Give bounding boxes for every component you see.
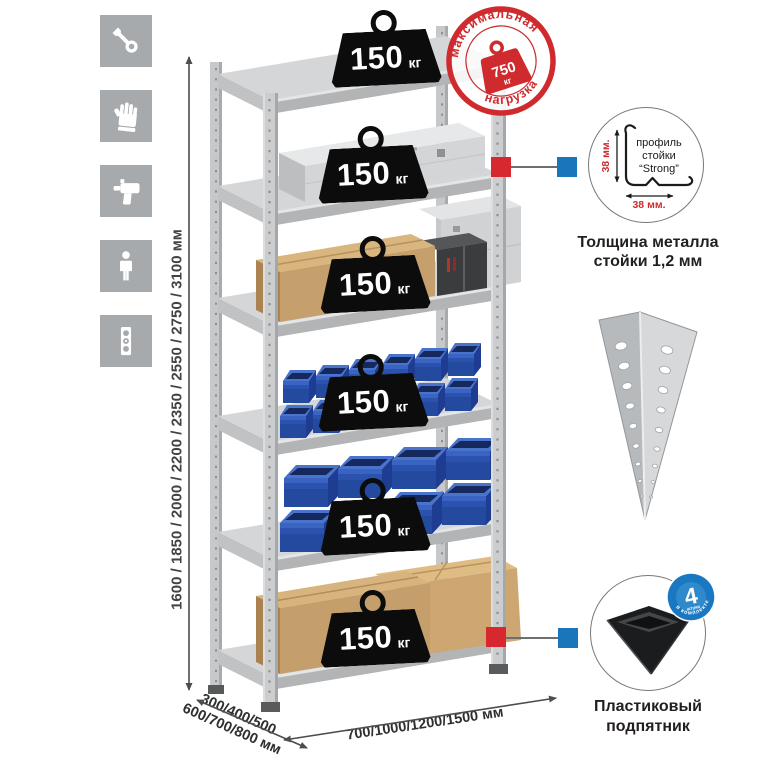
weight-body: 150 кг [317,254,432,314]
angle-post-graphic [593,306,703,526]
profile-caption: Толщина металла стойки 1,2 мм [563,233,733,271]
foot-caption: Пластиковый подпятник [573,697,723,737]
load-unit: кг [397,634,411,651]
weight-badge-shelf2: 150 кг [314,123,430,204]
callout-marker-blue-top [557,157,577,177]
callout-marker-blue-bottom [558,628,578,648]
weight-badge-shelf6: 150 кг [316,587,432,668]
load-value: 150 [336,383,391,422]
person-icon [100,240,152,292]
weight-body: 150 кг [315,372,430,432]
profile-label-line1: профиль [636,137,682,149]
product-infographic: 1600 / 1850 / 2000 / 2200 / 2350 / 2550 … [0,0,765,765]
load-unit: кг [395,398,409,415]
profile-label-line3: “Strong” [639,163,679,175]
foot-caption-line2: подпятник [573,717,723,737]
callout-marker-red-top [491,157,511,177]
post-profile-drawing: 38 мм. 38 мм. профиль стойки “Strong” [589,108,702,221]
weight-body: 150 кг [317,496,432,556]
weight-badge-shelf3: 150 кг [316,233,432,314]
load-unit: кг [408,54,422,71]
weight-badge-shelf4: 150 кг [314,351,430,432]
post-profile-detail-circle: 38 мм. 38 мм. профиль стойки “Strong” [588,107,704,223]
load-unit: кг [397,280,411,297]
load-unit: кг [395,170,409,187]
profile-dim-horizontal: 38 мм. [632,199,665,211]
weight-badge-shelf1: 150 кг [327,7,443,88]
weight-body: 150 кг [315,144,430,204]
gloves-icon [100,90,152,142]
load-value: 150 [338,507,393,546]
weight-body: 150 кг [317,608,432,668]
callout-marker-red-bottom [486,627,506,647]
height-dimension-label: 1600 / 1850 / 2000 / 2200 / 2350 / 2550 … [169,130,186,710]
load-value: 150 [349,39,404,78]
wrench-icon [100,15,152,67]
load-value: 150 [338,619,393,658]
profile-dim-vertical: 38 мм. [600,139,612,172]
weight-body: 150 кг [328,28,443,88]
load-value: 150 [336,155,391,194]
foot-caption-line1: Пластиковый [573,697,723,717]
drill-icon [100,165,152,217]
max-load-stamp: максимальная нагрузка 750 кг [443,3,559,119]
load-unit: кг [397,522,411,539]
level-icon [100,315,152,367]
profile-caption-line1: Толщина металла [563,233,733,252]
quantity-badge: 4 штуки в комплекте [665,571,717,623]
profile-label-line2: стойки [642,150,676,162]
profile-caption-line2: стойки 1,2 мм [563,252,733,271]
load-value: 150 [338,265,393,304]
weight-badge-shelf5: 150 кг [316,475,432,556]
